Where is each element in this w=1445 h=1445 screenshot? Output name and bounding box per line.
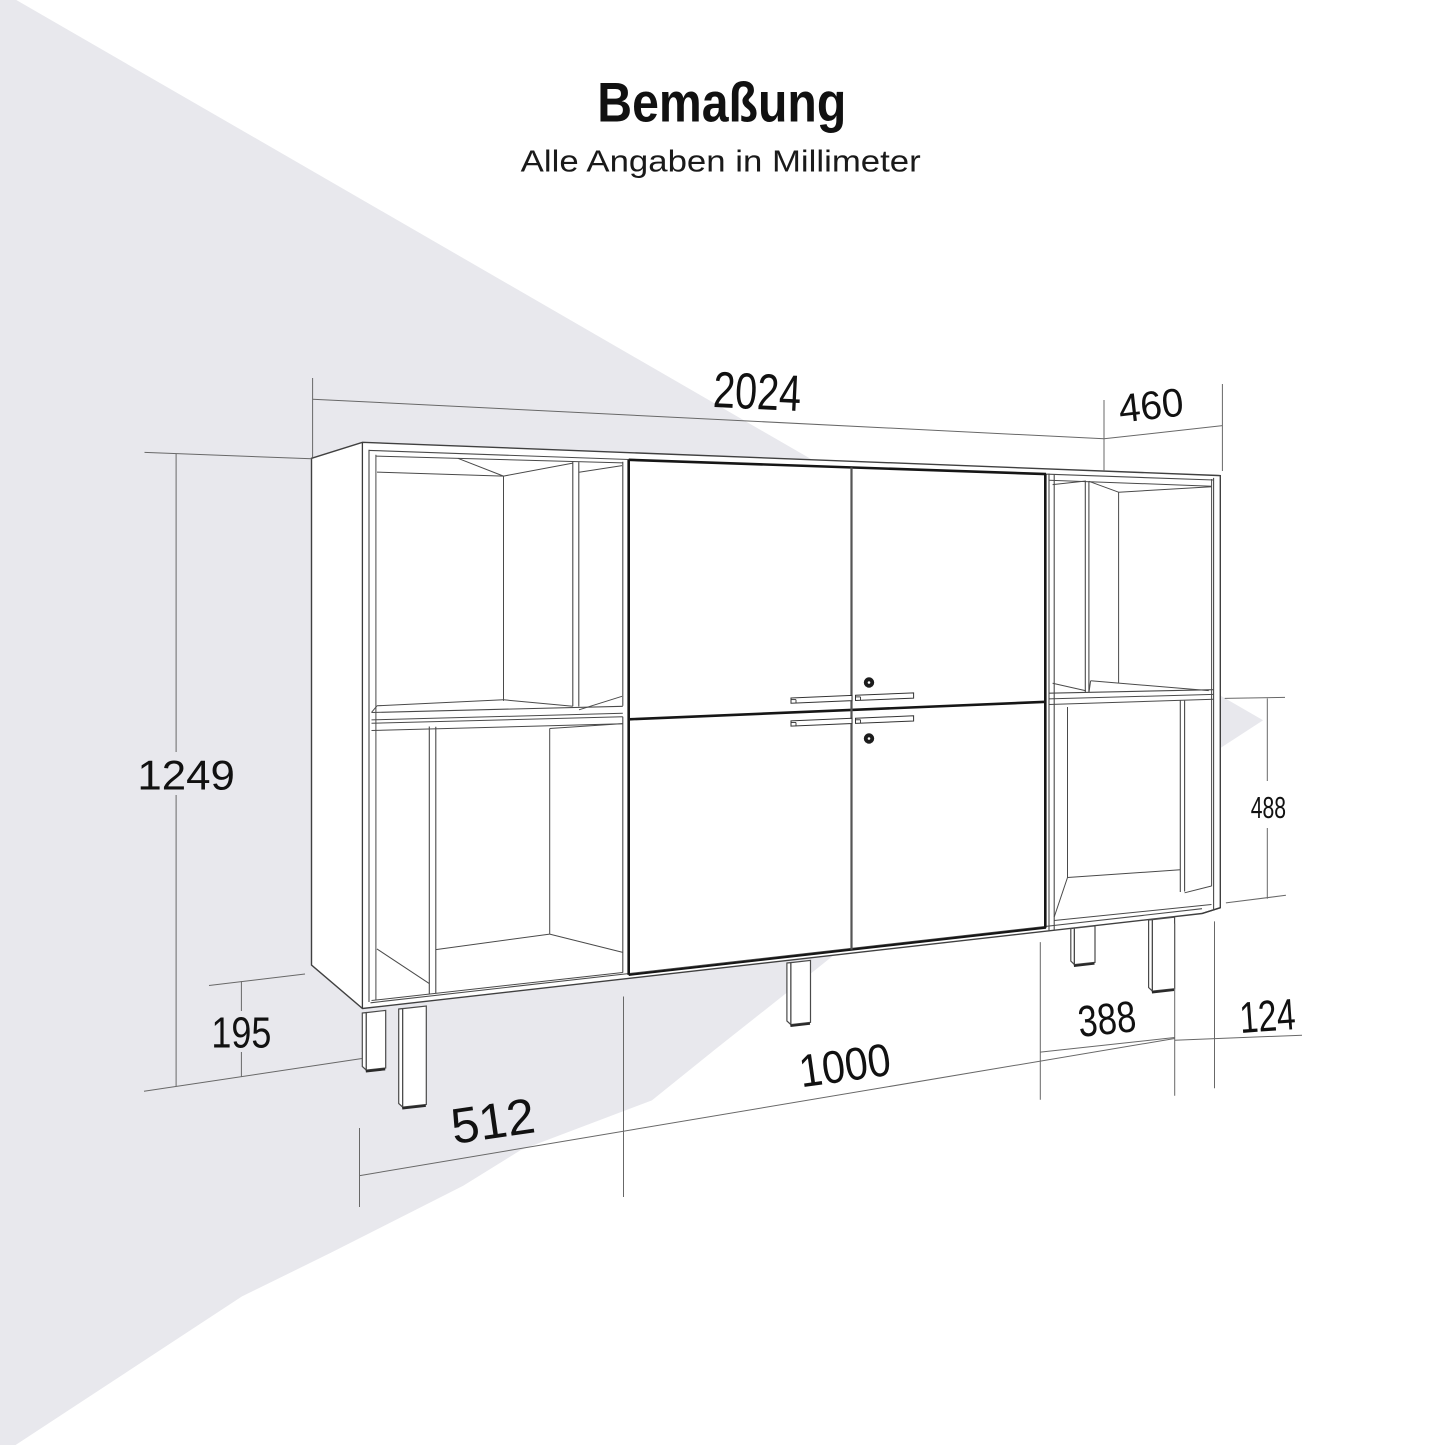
svg-text:1249: 1249 (137, 752, 235, 799)
svg-text:195: 195 (211, 1009, 271, 1058)
svg-text:388: 388 (1076, 992, 1139, 1047)
svg-text:Bemaßung: Bemaßung (597, 71, 846, 134)
svg-text:512: 512 (447, 1087, 538, 1154)
svg-text:2024: 2024 (712, 361, 803, 422)
svg-text:488: 488 (1251, 790, 1286, 825)
svg-text:124: 124 (1238, 990, 1297, 1043)
svg-text:Alle Angaben in Millimeter: Alle Angaben in Millimeter (521, 144, 921, 179)
svg-text:460: 460 (1116, 381, 1185, 432)
